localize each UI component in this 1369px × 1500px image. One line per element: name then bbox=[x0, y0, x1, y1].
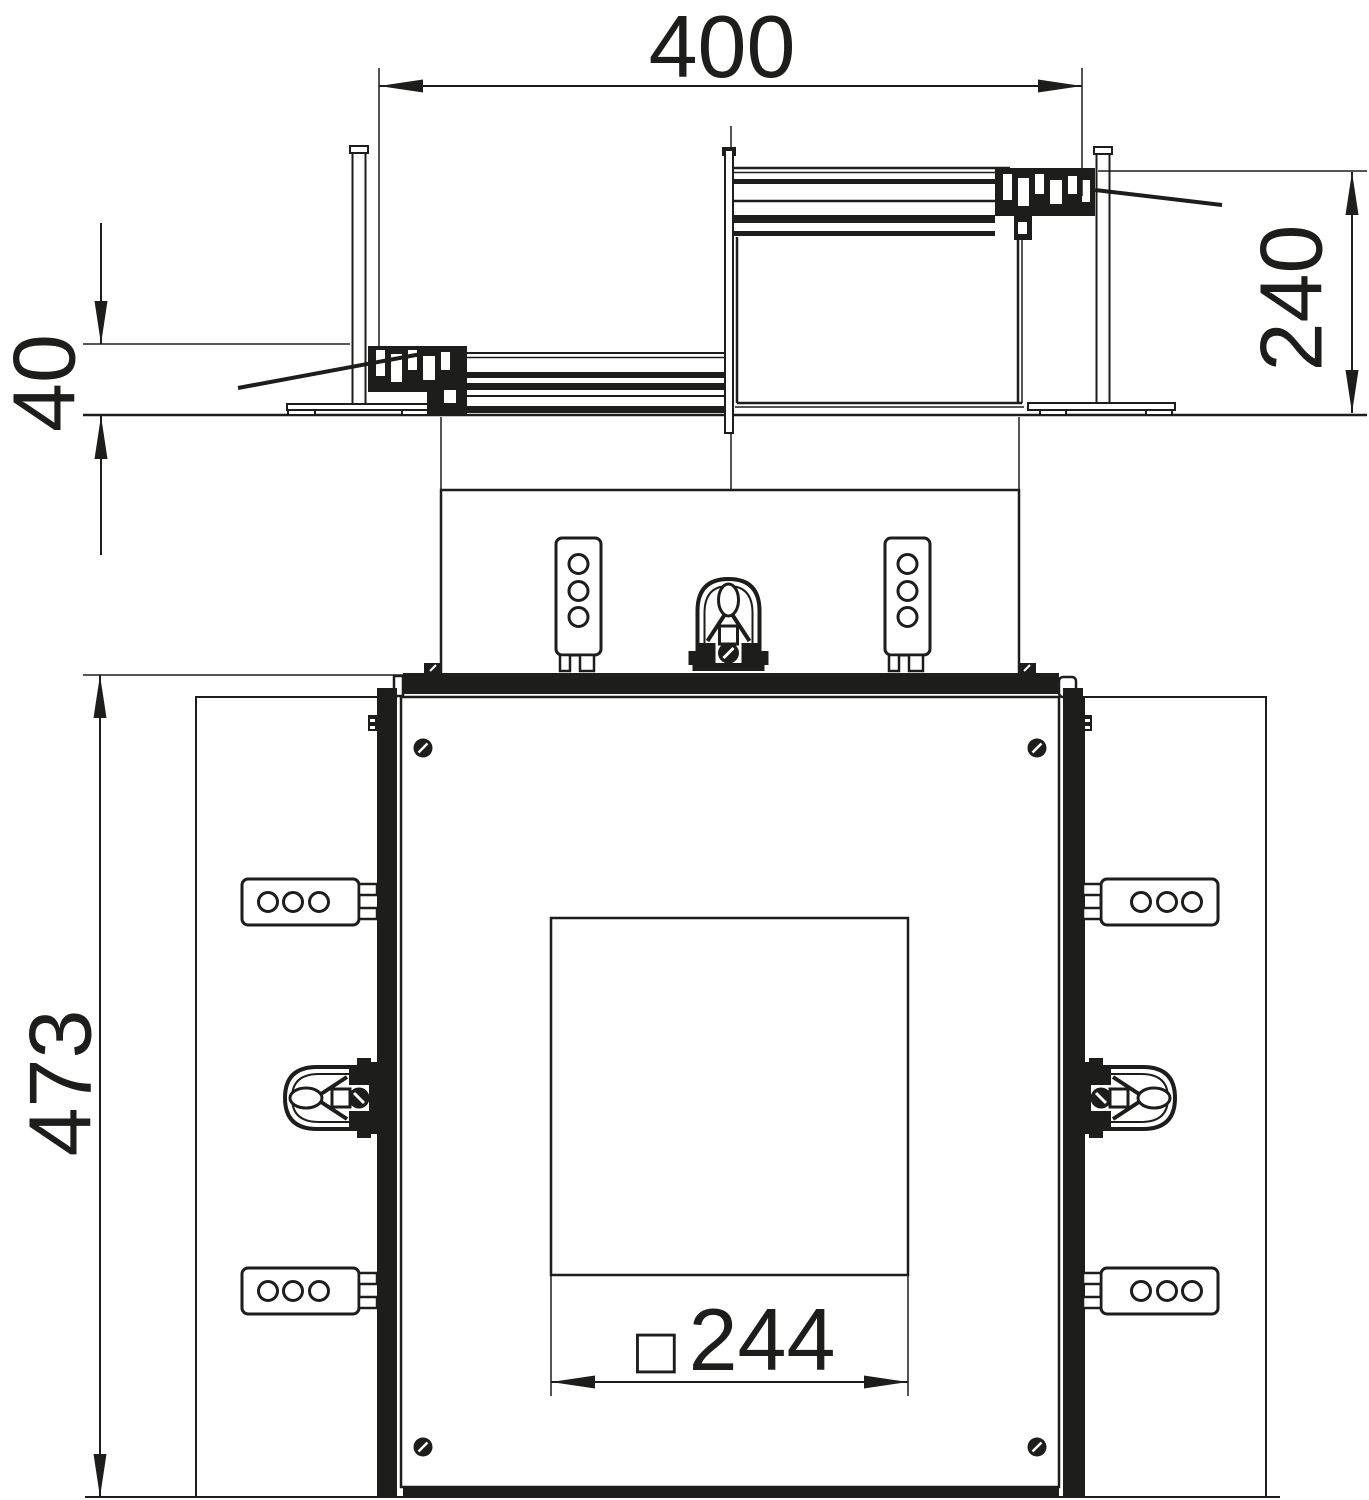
edge-tab-right bbox=[1083, 715, 1092, 731]
levelling-clamp-left bbox=[285, 1058, 377, 1138]
arrowhead bbox=[95, 301, 108, 344]
side-section-view bbox=[83, 126, 1367, 490]
arrowhead bbox=[94, 675, 107, 718]
corner-screw-top-right bbox=[1028, 739, 1047, 758]
fixing-strap-top-left bbox=[556, 538, 601, 671]
technical-drawing: 400 40 240 473 □ 244 bbox=[0, 0, 1369, 1500]
drawing-svg: 400 40 240 473 □ 244 bbox=[0, 0, 1369, 1500]
fixing-strap-right-lower bbox=[1083, 1268, 1218, 1314]
edge-tab-left bbox=[368, 715, 377, 731]
lower-duct-section bbox=[430, 353, 725, 413]
dimension-label-floor-recess-height: 40 bbox=[0, 334, 94, 432]
square-symbol-icon: □ bbox=[631, 1320, 680, 1380]
dimension-label-overall-width: 400 bbox=[649, 0, 796, 96]
dimension-label-unit-height: 240 bbox=[1242, 225, 1341, 372]
bar-fastener-left bbox=[424, 663, 442, 673]
corner-screw-bottom-right bbox=[1028, 1438, 1047, 1457]
dim-floor-recess-height: 40 bbox=[0, 223, 350, 555]
fixing-strap-left-lower bbox=[242, 1268, 377, 1314]
upper-clamp-lever bbox=[1095, 190, 1222, 205]
levelling-clamp-right bbox=[1083, 1058, 1175, 1138]
arrowhead bbox=[1038, 80, 1082, 93]
arrowhead bbox=[94, 1454, 107, 1497]
arrowhead bbox=[95, 416, 108, 459]
frame-bar-top bbox=[394, 673, 1076, 697]
levelling-clamp-top bbox=[689, 579, 769, 671]
fixing-strap-right-upper bbox=[1083, 879, 1218, 925]
arrowhead bbox=[1346, 370, 1359, 413]
service-cutout bbox=[551, 918, 908, 1275]
trunking-edge-left2 bbox=[377, 688, 397, 1498]
trunking-edge-right2 bbox=[1063, 688, 1083, 1498]
fixing-strap-top-right bbox=[885, 538, 930, 671]
bar-fastener-right bbox=[1018, 663, 1036, 673]
dimension-label-cutout-size: 244 bbox=[689, 1290, 836, 1389]
corner-screw-bottom-left bbox=[414, 1438, 433, 1457]
arrowhead bbox=[379, 80, 423, 93]
dimension-label-plan-height: 473 bbox=[11, 1010, 110, 1157]
fixing-strap-left-upper bbox=[242, 879, 377, 925]
arrowhead bbox=[1346, 172, 1359, 215]
upper-duct-section bbox=[733, 168, 1024, 407]
dim-unit-height: 240 bbox=[1098, 171, 1367, 413]
corner-screw-top-left bbox=[414, 739, 433, 758]
